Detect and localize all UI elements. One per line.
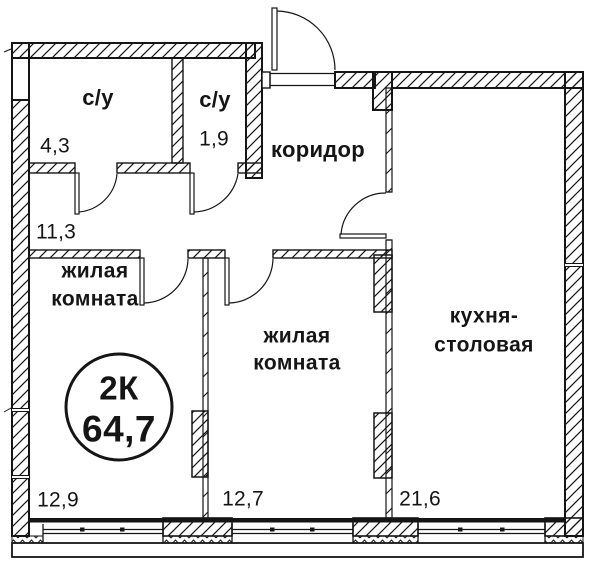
bathroom-bottom-wall-b — [117, 163, 190, 173]
room-area-living-2: 12,7 — [222, 489, 264, 510]
badge-apartment-type: 2К — [99, 372, 139, 405]
room-label-living-2-line1: жилая — [263, 326, 330, 347]
windows — [43, 524, 545, 543]
kitchen-wall-pilaster-1 — [374, 255, 392, 312]
rooms-top-wall-a — [29, 250, 140, 258]
living-room-2-door — [225, 258, 273, 305]
entry-door — [270, 8, 335, 88]
kitchen-wall-upper — [386, 88, 392, 192]
room-area-bathroom-2: 1,9 — [199, 129, 229, 150]
window-living-room-2 — [232, 524, 353, 543]
bottom-pier-2 — [353, 518, 418, 536]
bottom-pier-3 — [545, 518, 583, 536]
bottom-inner-line — [29, 518, 565, 523]
window-kitchen — [418, 524, 545, 543]
kitchen-wall-pilaster-2 — [374, 413, 392, 478]
bathroom2-right-wall — [246, 43, 262, 178]
right-wall — [565, 72, 583, 536]
room-label-living-2-line2: комната — [253, 353, 340, 374]
bottom-pier-1 — [163, 518, 232, 536]
top-wall-left — [12, 43, 255, 58]
bathroom-bottom-wall-c — [238, 163, 262, 173]
kitchen-door — [340, 192, 392, 240]
room-label-kitchen-line2: столовая — [434, 335, 534, 356]
entry-wall-right — [335, 72, 375, 88]
bathroom-1-door — [75, 173, 117, 214]
left-wall — [12, 100, 29, 536]
window-living-room-1 — [43, 524, 163, 543]
bottom-slab — [12, 543, 583, 557]
room-label-bathroom-1: с/у — [82, 87, 113, 109]
zigzag-strip-0 — [12, 536, 43, 543]
entry-wall-stub — [262, 72, 270, 88]
badge-total-area: 64,7 — [82, 411, 156, 448]
zigzag-strip-2 — [353, 536, 418, 543]
living-rooms-divider-wall — [203, 258, 208, 518]
room-label-bathroom-2: с/у — [199, 89, 230, 111]
floor-plan: с/у 4,3 с/у 1,9 коридор 11,3 жилая комна… — [0, 0, 604, 568]
kitchen-top-wall — [392, 72, 583, 88]
room-label-living-1-line1: жилая — [61, 261, 128, 282]
room-area-kitchen: 21,6 — [399, 489, 441, 510]
bathroom-divider-wall — [172, 58, 183, 163]
bathroom-bottom-wall-a — [29, 163, 75, 173]
room-label-living-1-line2: комната — [51, 289, 138, 310]
bathroom-2-door — [190, 173, 238, 214]
zigzag-strip-1 — [163, 536, 232, 543]
room-area-bathroom-1: 4,3 — [40, 136, 70, 157]
zigzag-strip-3 — [545, 536, 583, 543]
bottom-wall — [12, 518, 583, 557]
divider-pilaster — [192, 411, 208, 477]
room-label-corridor: коридор — [271, 139, 365, 161]
rooms-top-wall-b — [188, 250, 225, 258]
room-area-living-1: 12,9 — [37, 490, 79, 511]
living-room-1-door — [140, 258, 188, 305]
room-label-kitchen-line1: кухня- — [450, 306, 518, 327]
room-area-corridor: 11,3 — [36, 222, 76, 243]
